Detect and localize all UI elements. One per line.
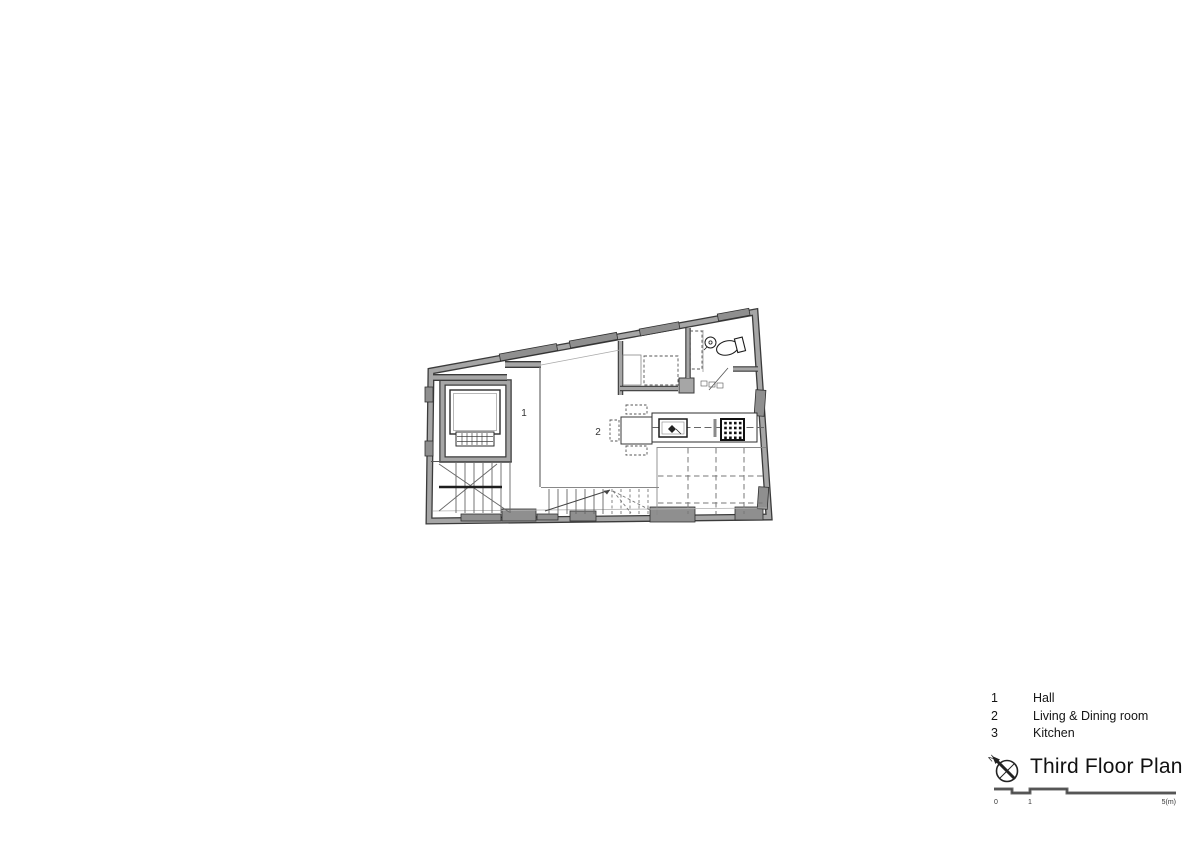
kitchen-sink-icon: [659, 419, 687, 437]
stove-icon: [721, 419, 744, 440]
legend-number: 3: [991, 725, 1033, 743]
legend-label: Hall: [1033, 690, 1200, 708]
legend-number: 1: [991, 690, 1033, 708]
legend-row-living-dining: 2 Living & Dining room: [991, 708, 1200, 726]
room-legend: 1 Hall 2 Living & Dining room 3 Kitchen: [991, 690, 1200, 743]
legend-row-hall: 1 Hall: [991, 690, 1200, 708]
room-label-hall: 1: [521, 408, 527, 419]
scale-bar: 0 1 5(m): [992, 784, 1192, 810]
legend-label: Kitchen: [1033, 725, 1200, 743]
legend-number: 2: [991, 708, 1033, 726]
elevator-car: [450, 390, 500, 446]
scale-label-1: 1: [1028, 799, 1032, 806]
legend-row-kitchen: 3 Kitchen: [991, 725, 1200, 743]
kitchen-island: [652, 413, 766, 442]
drawing-sheet: 1 2 1 Hall 2 Living & Dining room 3 Kitc…: [0, 0, 1200, 842]
plan-title: Third Floor Plan: [1030, 755, 1183, 779]
legend-label: Living & Dining room: [1033, 708, 1200, 726]
scale-label-0: 0: [994, 799, 998, 806]
scale-label-5m: 5(m): [1162, 799, 1176, 806]
room-label-living-dining: 2: [595, 427, 601, 438]
